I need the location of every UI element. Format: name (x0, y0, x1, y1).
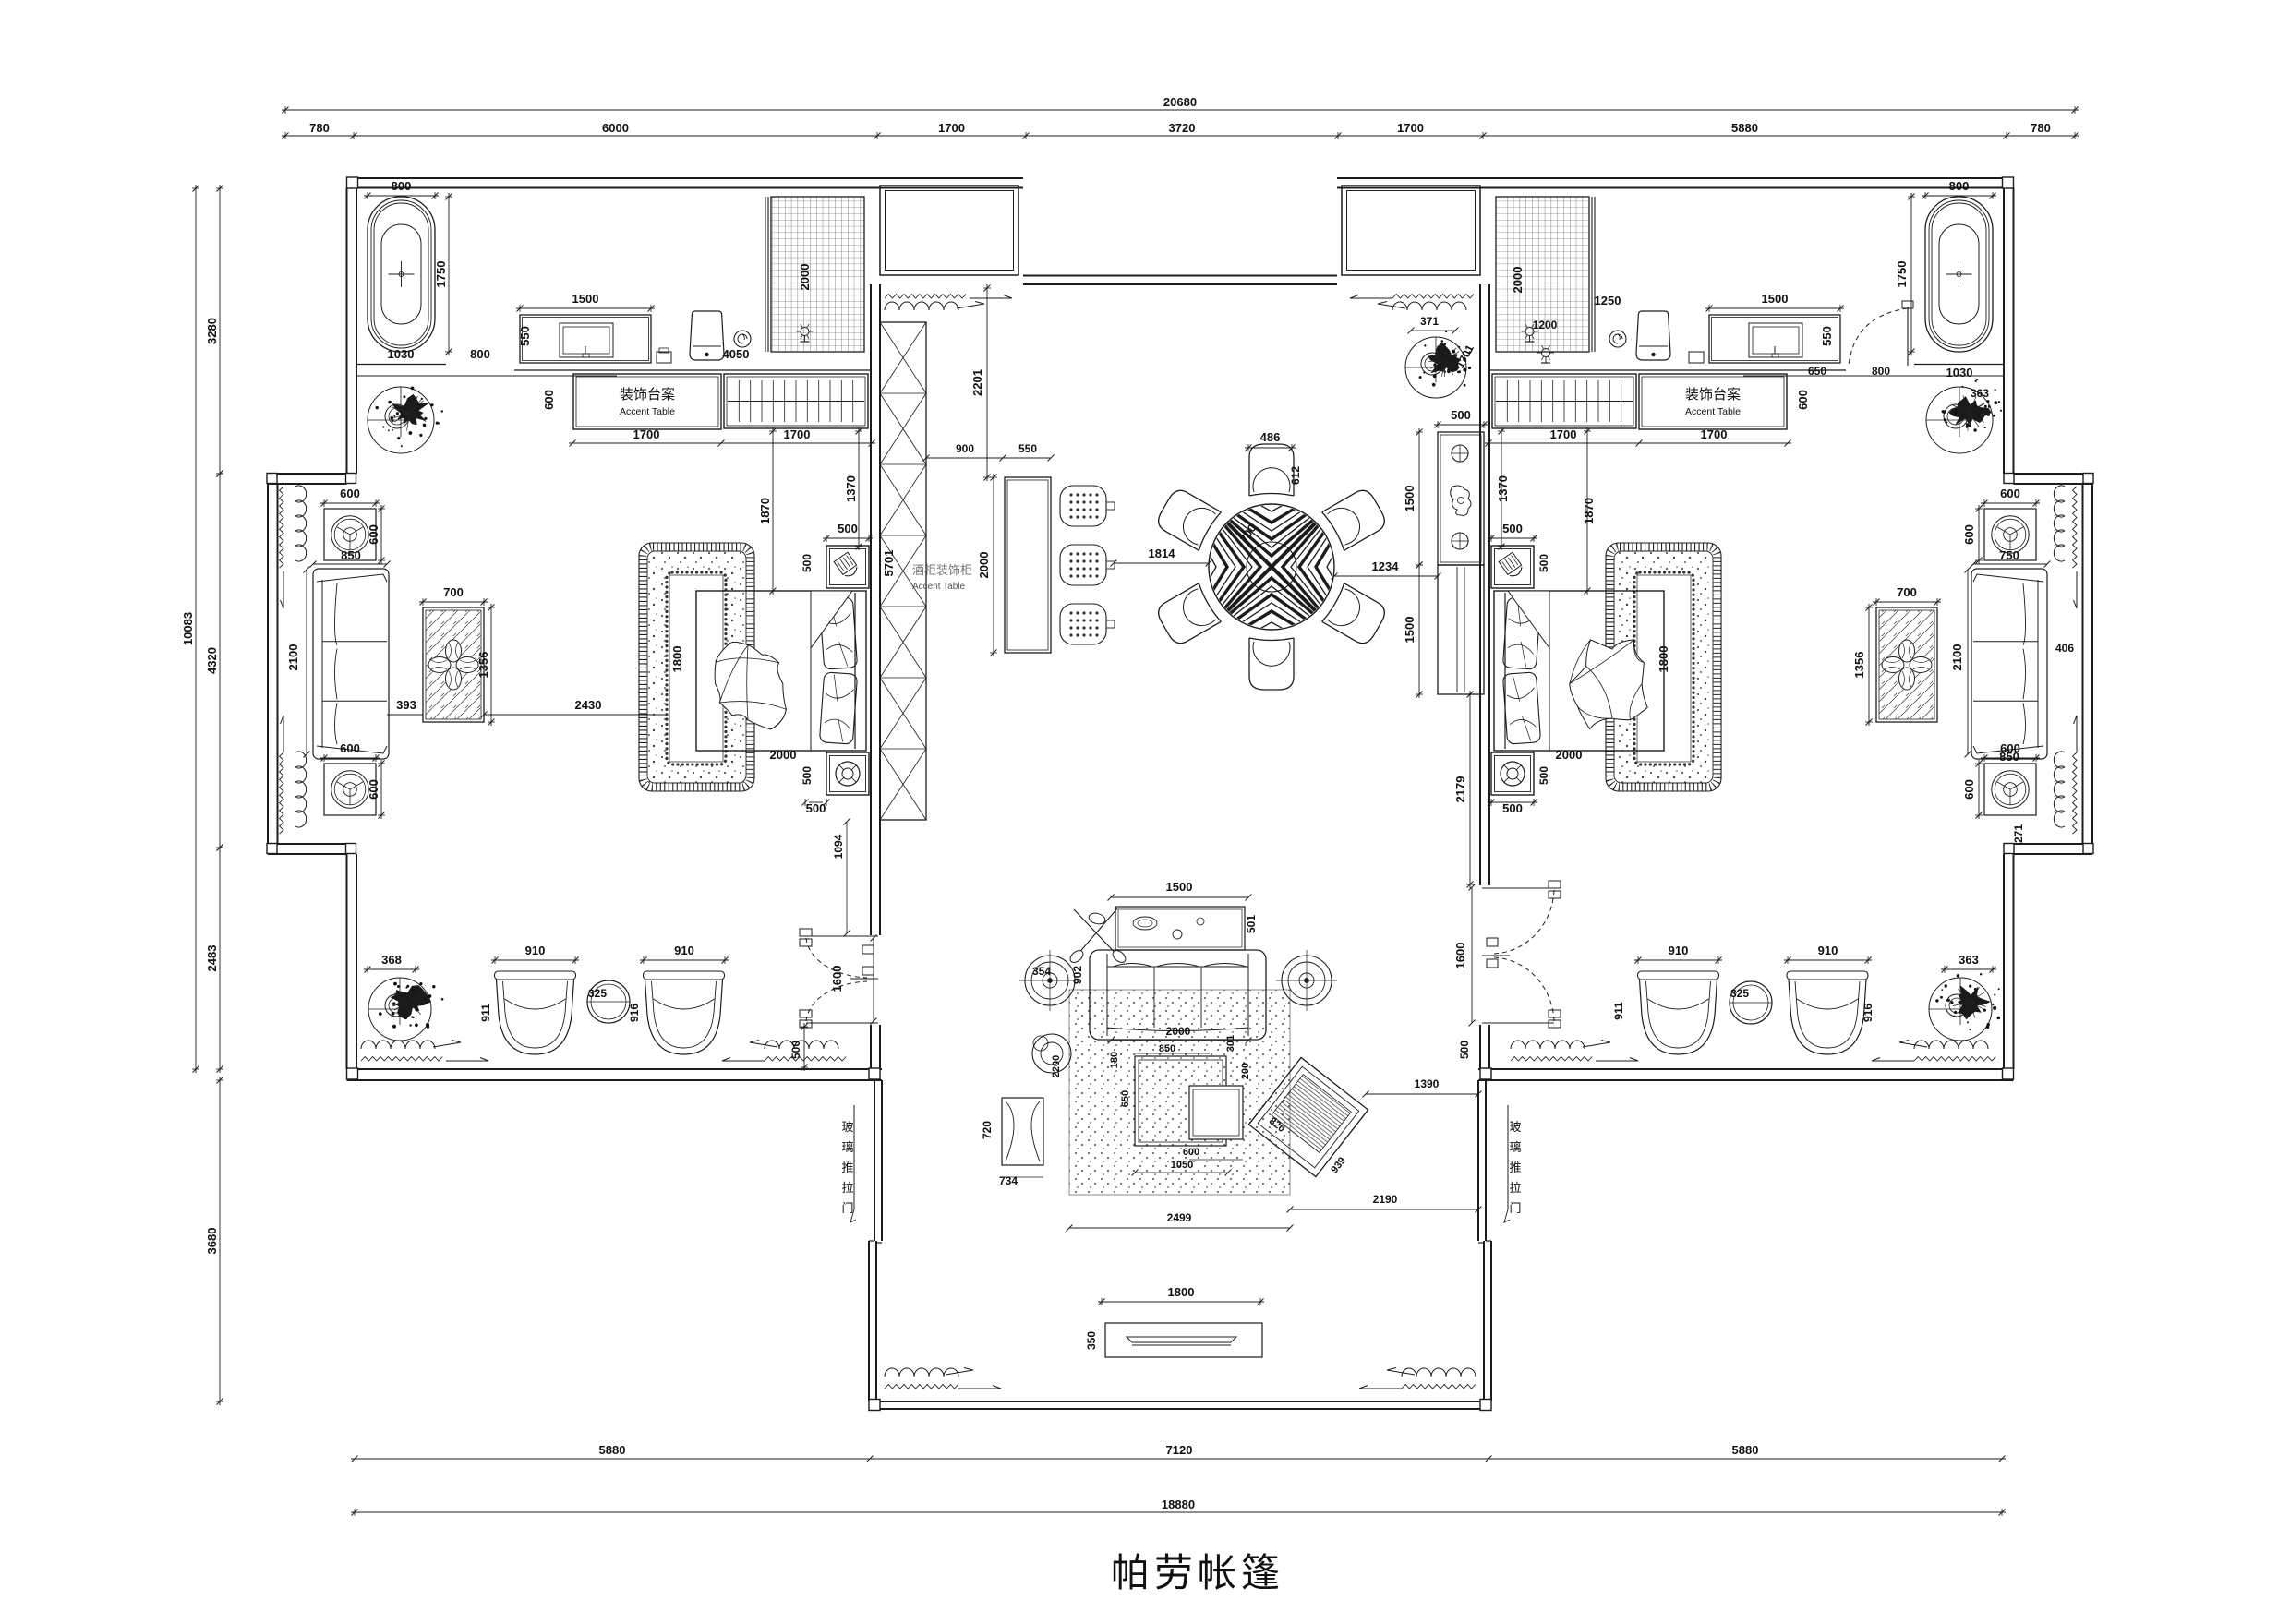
svg-text:5701: 5701 (882, 550, 896, 577)
svg-text:门: 门 (841, 1201, 853, 1215)
svg-text:2000: 2000 (977, 552, 991, 579)
svg-text:酒柜装饰柜: 酒柜装饰柜 (912, 563, 972, 577)
svg-text:1700: 1700 (633, 427, 660, 441)
svg-text:650: 650 (1808, 365, 1826, 378)
svg-text:500: 500 (1537, 766, 1550, 785)
svg-text:1800: 1800 (670, 646, 684, 673)
svg-text:271: 271 (2012, 824, 2025, 843)
svg-text:2000: 2000 (1166, 1025, 1191, 1038)
svg-text:推: 推 (1509, 1161, 1521, 1174)
svg-text:1600: 1600 (830, 966, 844, 992)
svg-text:486: 486 (1260, 430, 1281, 444)
svg-text:7120: 7120 (1166, 1443, 1193, 1457)
svg-text:1050: 1050 (1171, 1160, 1193, 1171)
svg-text:帕劳帐篷: 帕劳帐篷 (1111, 1553, 1284, 1595)
svg-text:612: 612 (1289, 466, 1302, 485)
svg-text:Accent Table: Accent Table (620, 406, 675, 417)
svg-text:180: 180 (1109, 1052, 1120, 1068)
svg-text:3680: 3680 (205, 1228, 219, 1255)
svg-text:500: 500 (1502, 522, 1523, 535)
svg-text:406: 406 (2055, 642, 2074, 655)
svg-text:910: 910 (525, 944, 546, 957)
svg-text:2200: 2200 (1051, 1055, 1062, 1077)
svg-text:700: 700 (1897, 585, 1917, 599)
svg-text:1250: 1250 (1595, 294, 1621, 307)
svg-text:500: 500 (1458, 1041, 1471, 1059)
svg-text:900: 900 (956, 442, 974, 455)
svg-text:6000: 6000 (602, 121, 629, 135)
svg-text:10083: 10083 (181, 612, 195, 645)
svg-text:500: 500 (1502, 801, 1523, 815)
svg-text:2201: 2201 (970, 369, 984, 396)
svg-text:1870: 1870 (758, 498, 772, 524)
svg-text:5880: 5880 (1732, 1443, 1759, 1457)
svg-text:1500: 1500 (1166, 880, 1193, 894)
svg-text:玻: 玻 (1509, 1120, 1521, 1134)
svg-text:363: 363 (1959, 953, 1979, 967)
svg-text:1370: 1370 (844, 475, 858, 502)
svg-text:1750: 1750 (434, 261, 448, 288)
svg-text:Accent Table: Accent Table (912, 582, 966, 592)
svg-text:1500: 1500 (572, 292, 599, 306)
svg-text:1500: 1500 (1403, 617, 1416, 644)
svg-text:Accent Table: Accent Table (1685, 406, 1741, 417)
svg-text:5880: 5880 (599, 1443, 626, 1457)
svg-text:800: 800 (470, 347, 490, 361)
svg-text:800: 800 (1949, 179, 1970, 193)
svg-text:2190: 2190 (1373, 1193, 1398, 1206)
svg-text:600: 600 (1796, 390, 1810, 410)
svg-text:推: 推 (841, 1161, 853, 1174)
svg-text:5880: 5880 (1731, 121, 1758, 135)
svg-text:500: 500 (789, 1041, 802, 1059)
svg-text:1500: 1500 (1403, 486, 1416, 512)
svg-text:璃: 璃 (1509, 1140, 1521, 1154)
svg-text:4050: 4050 (723, 347, 750, 361)
svg-text:325: 325 (1730, 987, 1749, 1000)
svg-text:装饰台案: 装饰台案 (1685, 386, 1741, 403)
svg-text:1700: 1700 (1550, 427, 1577, 441)
svg-text:1234: 1234 (1372, 559, 1400, 573)
svg-text:2179: 2179 (1453, 776, 1467, 803)
svg-text:363: 363 (1971, 387, 1989, 400)
svg-text:1800: 1800 (1168, 1285, 1195, 1299)
svg-text:500: 500 (806, 801, 826, 815)
svg-text:1800: 1800 (1657, 646, 1670, 673)
svg-text:2100: 2100 (286, 644, 300, 671)
svg-text:600: 600 (367, 524, 380, 545)
svg-text:1700: 1700 (1397, 121, 1424, 135)
svg-text:325: 325 (588, 987, 607, 1000)
svg-text:800: 800 (392, 179, 412, 193)
svg-text:1094: 1094 (832, 834, 845, 859)
svg-text:4320: 4320 (205, 647, 219, 674)
svg-text:720: 720 (981, 1121, 994, 1139)
svg-text:650: 650 (1120, 1090, 1131, 1107)
svg-text:393: 393 (396, 698, 416, 712)
svg-text:916: 916 (1862, 1004, 1874, 1022)
svg-text:301: 301 (1225, 1035, 1236, 1052)
svg-text:600: 600 (367, 779, 380, 800)
svg-text:850: 850 (1159, 1043, 1175, 1054)
svg-text:550: 550 (518, 326, 532, 346)
svg-text:911: 911 (479, 1004, 492, 1022)
svg-text:3720: 3720 (1169, 121, 1196, 135)
svg-text:600: 600 (2000, 487, 2020, 500)
svg-text:902: 902 (1071, 966, 1084, 984)
svg-text:2000: 2000 (1556, 748, 1583, 762)
svg-text:600: 600 (1962, 779, 1976, 800)
svg-text:1500: 1500 (1762, 292, 1789, 306)
svg-text:1700: 1700 (938, 121, 965, 135)
svg-text:2430: 2430 (575, 698, 602, 712)
svg-text:1356: 1356 (476, 652, 490, 679)
svg-text:550: 550 (1018, 442, 1037, 455)
svg-text:1356: 1356 (1852, 652, 1866, 679)
svg-text:2499: 2499 (1167, 1211, 1192, 1224)
svg-text:3280: 3280 (205, 318, 219, 344)
svg-text:20680: 20680 (1163, 95, 1197, 109)
svg-text:1600: 1600 (1453, 943, 1467, 969)
svg-text:2000: 2000 (798, 264, 812, 291)
svg-text:780: 780 (309, 121, 330, 135)
svg-text:1030: 1030 (1946, 366, 1973, 379)
svg-text:2000: 2000 (1511, 267, 1525, 294)
svg-text:玻: 玻 (841, 1120, 853, 1134)
svg-text:910: 910 (674, 944, 694, 957)
svg-text:拉: 拉 (841, 1181, 853, 1195)
svg-text:800: 800 (1872, 365, 1890, 378)
svg-text:璃: 璃 (841, 1140, 853, 1154)
svg-text:368: 368 (381, 953, 402, 967)
svg-text:700: 700 (443, 585, 464, 599)
svg-text:780: 780 (2031, 121, 2051, 135)
svg-text:装饰台案: 装饰台案 (620, 386, 675, 403)
svg-text:910: 910 (1818, 944, 1838, 957)
svg-text:2000: 2000 (770, 748, 797, 762)
svg-text:500: 500 (1537, 554, 1550, 572)
svg-text:501: 501 (1245, 915, 1258, 933)
svg-text:1870: 1870 (1582, 498, 1596, 524)
svg-text:1700: 1700 (1701, 427, 1728, 441)
svg-text:门: 门 (1509, 1201, 1521, 1215)
svg-text:600: 600 (340, 487, 360, 500)
svg-text:354: 354 (1032, 965, 1051, 978)
svg-text:910: 910 (1669, 944, 1689, 957)
svg-text:2100: 2100 (1950, 644, 1964, 671)
svg-text:550: 550 (1820, 326, 1834, 346)
svg-text:600: 600 (340, 741, 360, 755)
svg-text:500: 500 (801, 766, 814, 785)
svg-text:1370: 1370 (1496, 475, 1510, 502)
svg-text:18880: 18880 (1162, 1498, 1195, 1511)
svg-text:1200: 1200 (1533, 319, 1558, 331)
svg-text:600: 600 (2000, 741, 2020, 755)
svg-text:500: 500 (801, 554, 814, 572)
svg-text:拉: 拉 (1509, 1181, 1521, 1195)
svg-text:500: 500 (838, 522, 858, 535)
svg-text:1750: 1750 (1895, 261, 1909, 288)
svg-text:1030: 1030 (388, 347, 415, 361)
svg-text:1390: 1390 (1415, 1077, 1440, 1090)
svg-text:1700: 1700 (784, 427, 811, 441)
svg-text:1814: 1814 (1149, 547, 1176, 560)
svg-text:371: 371 (1420, 315, 1439, 328)
svg-text:600: 600 (542, 390, 556, 410)
svg-text:600: 600 (1183, 1147, 1199, 1158)
svg-text:911: 911 (1612, 1002, 1625, 1020)
svg-text:734: 734 (999, 1174, 1018, 1187)
svg-text:2483: 2483 (205, 945, 219, 972)
svg-text:350: 350 (1085, 1331, 1098, 1350)
svg-text:600: 600 (1962, 524, 1976, 545)
svg-text:200: 200 (1240, 1063, 1251, 1079)
svg-text:500: 500 (1451, 408, 1471, 422)
